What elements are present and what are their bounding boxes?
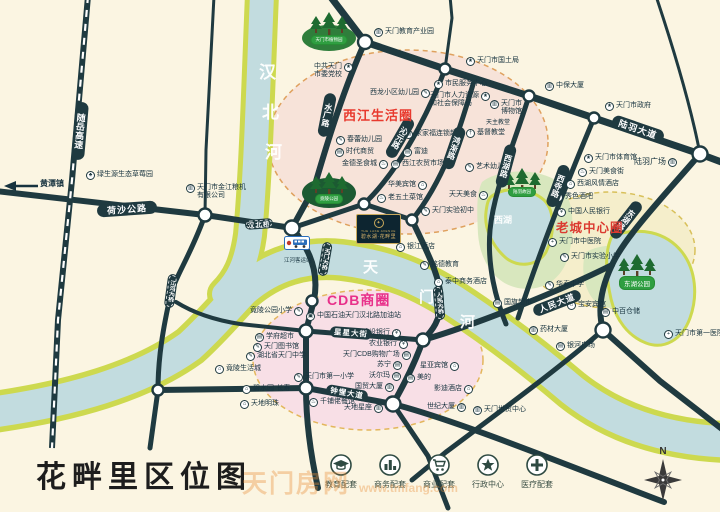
gov-poi-icon: ★ — [466, 57, 475, 66]
poi: ✎天门实验初中 — [421, 207, 474, 216]
poi: ♣绿生源生态草莓园 — [86, 171, 153, 180]
poi-label: 世纪大厦 — [427, 403, 455, 411]
poi: ▤银河广场 — [556, 342, 595, 351]
river-name-char: 西湖 — [494, 213, 512, 226]
edu-poi-icon: ✎ — [545, 281, 554, 290]
poi-label: 竟陵公园小学 — [250, 307, 292, 315]
poi-label: 天门美食街 — [589, 168, 624, 176]
poi: ★天门市政府 — [605, 102, 651, 111]
edu-poi-icon: ✎ — [420, 261, 429, 270]
poi: ♨老五土菜馆 — [377, 194, 423, 203]
legend-label: 行政中心 — [472, 479, 504, 490]
poi: 影迪酒店⌂ — [434, 385, 473, 394]
poi-label: 金德圣食城 — [342, 160, 377, 168]
poi: 竟陵公园小学✎ — [250, 307, 303, 316]
poi-label: 基督教堂 — [477, 129, 505, 137]
poi: +天门市中医院 — [548, 238, 601, 247]
gov-poi-icon: ★ — [584, 154, 593, 163]
poi-label: 中共天门市委党校 — [314, 63, 342, 79]
zone-label: 西江生活圈 — [343, 105, 413, 124]
poi: ★市民服务中心 — [434, 80, 487, 89]
biz-poi-icon: ▥ — [385, 383, 394, 392]
poi-label: 中百仓储 — [612, 308, 640, 316]
poi-label: 西江农贸市场 — [402, 160, 444, 168]
road-label: 荷沙公路 — [97, 200, 158, 217]
shop-poi-icon: ▤ — [255, 333, 264, 342]
poi: ⌂西湖风情酒店 — [566, 180, 619, 189]
edu-poi-icon: ✎ — [421, 207, 430, 216]
park-label: 东湖公园 — [619, 276, 655, 290]
road-label: 汉北桥 — [245, 218, 274, 230]
hotel-poi-icon: ⌂ — [450, 362, 459, 371]
hotel-poi-icon: ⌂ — [566, 180, 575, 189]
zone-label: 老城中心圈 — [556, 217, 624, 236]
watermark-en: www.tmfang.com — [359, 481, 458, 495]
edu-poi-icon: ✎ — [465, 163, 474, 172]
poi: ▥天门市博物馆 — [490, 100, 522, 116]
poi: 天主教堂 — [486, 119, 510, 127]
edu-poi-icon: ✎ — [253, 343, 262, 352]
shop-poi-icon: ▤ — [402, 351, 411, 360]
watermark: 天门房网 www.tmfang.com — [242, 464, 458, 500]
food-poi-icon: ♨ — [479, 191, 488, 200]
church-poi-icon: † — [466, 129, 475, 138]
park-label: 竟陵公园 — [315, 194, 343, 204]
poi-label: 中国人民银行 — [568, 208, 610, 216]
poi-label: 国旗超市 — [504, 299, 532, 307]
poi: ★天门市体育馆 — [584, 154, 637, 163]
poi: 天门市人力资源和社会保障局★ — [430, 92, 490, 108]
poi-label: 天主教堂 — [486, 119, 510, 127]
poi: ▣中国石油天门汉北路加油站 — [306, 312, 401, 321]
poi: 华美宾馆⌂ — [388, 181, 427, 190]
poi-label: 天天美食 — [449, 191, 477, 199]
poi: ▤富迪 — [403, 148, 428, 157]
road-label: 星星大街 — [330, 326, 373, 340]
poi-label: 绿生源生态草莓园 — [97, 171, 153, 179]
poi: +天门市第一医院 — [664, 330, 720, 339]
poi: 星亚宾馆⌂ — [420, 362, 459, 371]
food-poi-icon: ♨ — [379, 160, 388, 169]
poi: ▥天门教育产业园 — [374, 28, 434, 37]
poi-label: 老五土菜馆 — [388, 194, 423, 202]
gov-poi-icon: ★ — [481, 92, 490, 101]
poi-label: 沃尔玛 — [369, 372, 390, 380]
poi: ✎湖北省天门中学 — [246, 352, 306, 361]
poi: 世纪大厦▥ — [427, 403, 466, 412]
poi: ▤学府超市 — [255, 333, 294, 342]
poi: 天天美食♨ — [449, 191, 488, 200]
poi-label: 天门市中医院 — [559, 238, 601, 246]
poi-label: 农业银行 — [369, 340, 397, 348]
poi-label: 天门教育产业园 — [385, 28, 434, 36]
poi: 金德圣食城♨ — [342, 160, 388, 169]
road-label: 人民大桥 — [433, 286, 446, 321]
poi: ▤国旗超市 — [493, 299, 532, 308]
biz-poi-icon: ▥ — [374, 404, 383, 413]
poi-label: 学府超市 — [266, 333, 294, 341]
biz-poi-icon: ▥ — [473, 406, 482, 415]
poi-label: 市民服务中心 — [445, 80, 487, 88]
road-label: 江河大桥 — [164, 273, 179, 308]
biz-poi-icon: ▥ — [668, 158, 677, 167]
gas-poi-icon: ▣ — [306, 312, 315, 321]
river-name-char: 河 — [460, 311, 475, 332]
poi: ✎天门市实验小学 — [560, 253, 620, 262]
poi-label: 天门市体育馆 — [595, 154, 637, 162]
poi-label: 天门市实验小学 — [571, 253, 620, 261]
poi-label: 影迪酒店 — [434, 385, 462, 393]
poi-label: 竟陵生活城 — [226, 365, 261, 373]
poi-label: 西湖风情酒店 — [577, 180, 619, 188]
poi: ▤中百仓储 — [601, 308, 640, 317]
road-label: 陆羽大道 — [610, 114, 665, 144]
shop-poi-icon: ▤ — [601, 308, 610, 317]
poi-label: 春蕾幼儿园 — [347, 136, 382, 144]
poi-label: 湖北省天门中学 — [257, 352, 306, 360]
page-title: 花畔里区位图 — [36, 452, 252, 496]
poi: ▥中保大厦 — [545, 82, 584, 91]
road-label: 水厂路 — [317, 92, 337, 137]
med-poi-icon: + — [664, 330, 673, 339]
poi: ♨天门美食街 — [578, 168, 624, 177]
shop-poi-icon: ▤ — [392, 372, 401, 381]
shop-poi-icon: ▤ — [391, 160, 400, 169]
poi: ▤西江农贸市场 — [391, 160, 444, 169]
shop-poi-icon: ▤ — [393, 361, 402, 370]
biz-poi-icon: ▥ — [529, 326, 538, 335]
poi-label: 天门市国土局 — [477, 57, 519, 65]
poi: ✎天门市第一小学 — [294, 373, 354, 382]
compass: N — [634, 446, 692, 508]
road-label: 天门大桥 — [317, 241, 333, 276]
compass-n-label: N — [634, 446, 692, 457]
poi-label: 星亚宾馆 — [420, 362, 448, 370]
shop-poi-icon: ▤ — [406, 374, 415, 383]
gov-poi-icon: ★ — [605, 102, 614, 111]
government-icon — [477, 454, 499, 476]
poi-label: 天地明珠 — [251, 400, 279, 408]
park-label: 陆羽故园 — [508, 187, 536, 197]
poi: ⌂泰中商务酒店 — [434, 278, 487, 287]
bank-poi-icon: ¥ — [557, 208, 566, 217]
poi: ✎春蕾幼儿园 — [336, 136, 382, 145]
poi: ▥天门市金江粮机有限公司 — [186, 184, 246, 200]
poi-label: 美的 — [417, 374, 431, 382]
edu-poi-icon: ✎ — [294, 373, 303, 382]
poi: 西龙小区幼儿园✎ — [370, 89, 430, 98]
poi-label: 银河广场 — [567, 342, 595, 350]
legend-label: 医疗配套 — [521, 479, 553, 490]
zone-label: CDB商圈 — [327, 290, 390, 310]
bank-poi-icon: ¥ — [399, 340, 408, 349]
poi: 天门CDB购物广场▤ — [343, 351, 411, 360]
poi: ▤时代商贸 — [335, 148, 374, 157]
poi: ¥中国人民银行 — [557, 208, 610, 217]
poi-label: 富迪 — [414, 148, 428, 156]
biz-poi-icon: ▥ — [374, 28, 383, 37]
shop-poi-icon: ▤ — [403, 148, 412, 157]
home-poi-icon: ⌂ — [240, 400, 249, 409]
watermark-cn: 天门房网 — [242, 470, 350, 498]
poi-label: 天门市第一小学 — [305, 373, 354, 381]
poi: ♨千铺佬餐馆 — [309, 398, 355, 407]
gov-poi-icon: ★ — [344, 63, 353, 72]
poi: 陆羽广场▥ — [634, 158, 677, 167]
poi: ✎天门图书馆 — [253, 343, 299, 352]
poi-label: 天门图书馆 — [264, 343, 299, 351]
gov-poi-icon: ★ — [434, 80, 443, 89]
hotel-poi-icon: ⌂ — [396, 243, 405, 252]
poi: ★天门市国土局 — [466, 57, 519, 66]
poi: ▥药材大厦 — [529, 326, 568, 335]
poi-label: 天门市政府 — [616, 102, 651, 110]
poi: 苏宁▤ — [377, 361, 402, 370]
poi-label: 西龙小区幼儿园 — [370, 89, 419, 97]
poi-label: 碧水园·长寿 — [253, 385, 290, 393]
poi: 沃尔玛▤ — [369, 372, 401, 381]
poi-label: 天门世贸中心 — [484, 406, 526, 414]
river-name-char: 门 — [419, 286, 434, 307]
poi: 中共天门市委党校★ — [314, 63, 353, 79]
food-poi-icon: ♨ — [309, 398, 318, 407]
river-name-char: 天 — [363, 256, 378, 277]
poi-label: 天门实验初中 — [432, 207, 474, 215]
poi-label: 时代商贸 — [346, 148, 374, 156]
poi-label: 天门市博物馆 — [501, 100, 522, 116]
poi-label: 秀色酒吧 — [565, 193, 593, 201]
farm-poi-icon: ♣ — [86, 171, 95, 180]
river-name-char: 汉 — [259, 58, 276, 83]
river-name-char: 河 — [265, 138, 282, 163]
home-poi-icon: ⌂ — [215, 365, 224, 374]
edu-poi-icon: ✎ — [294, 307, 303, 316]
biz-poi-icon: ▥ — [186, 184, 195, 193]
compass-rose-icon — [641, 457, 685, 503]
poi: 农业银行¥ — [369, 340, 408, 349]
river-name-char: 北 — [262, 98, 279, 123]
poi-label: 天门市金江粮机有限公司 — [197, 184, 246, 200]
shop-poi-icon: ▤ — [335, 148, 344, 157]
poi: ✎铭德教育 — [420, 261, 459, 270]
edu-poi-icon: ✎ — [421, 89, 430, 98]
poi: ▤美的 — [406, 374, 431, 383]
road-label: 随岳高速 — [71, 102, 89, 161]
biz-poi-icon: ▥ — [457, 403, 466, 412]
poi-label: 中国石油天门汉北路加油站 — [317, 312, 401, 320]
home-poi-icon: ⌂ — [242, 385, 251, 394]
edu-poi-icon: ✎ — [246, 352, 255, 361]
med-poi-icon: + — [548, 238, 557, 247]
shop-poi-icon: ▤ — [493, 299, 502, 308]
edu-poi-icon: ✎ — [560, 253, 569, 262]
shop-poi-icon: ▤ — [556, 342, 565, 351]
bank-poi-icon: ¥ — [392, 329, 401, 338]
park-label: 天门市植物园 — [311, 35, 348, 45]
food-poi-icon: ♨ — [578, 168, 587, 177]
poi-label: 药材大厦 — [540, 326, 568, 334]
poi-label: 泰中商务酒店 — [445, 278, 487, 286]
edu-poi-icon: ✎ — [336, 136, 345, 145]
hotel-poi-icon: ⌂ — [464, 385, 473, 394]
legend-item-government: 行政中心 — [470, 454, 506, 490]
poi: ▥天门世贸中心 — [473, 406, 526, 415]
poi-label: 陆羽广场 — [634, 158, 666, 166]
poi-label: 天门市第一医院 — [675, 330, 720, 338]
poi-label: 华美宾馆 — [388, 181, 416, 189]
medical-icon — [526, 454, 548, 476]
poi: ⌂天地明珠 — [240, 400, 279, 409]
poi-label: 天门CDB购物广场 — [343, 351, 400, 359]
poi-label: 天门市人力资源和社会保障局 — [430, 92, 479, 108]
map-labels-layer: ♣绿生源生态草莓园▥天门市金江粮机有限公司▥天门教育产业园中共天门市委党校★★天… — [0, 0, 720, 512]
biz-poi-icon: ▥ — [490, 100, 499, 109]
poi: ⌂银江酒店 — [396, 243, 435, 252]
location-map-page: 江河客运站 ✦ THE LAKE AVENUE 碧水湖·花畔里 黄潭镇 ♣绿生源… — [0, 0, 720, 512]
poi-label: 银江酒店 — [407, 243, 435, 251]
poi: ✎华泰中学 — [545, 281, 584, 290]
poi: ⌂碧水园·长寿 — [242, 385, 290, 394]
poi-label: 华泰中学 — [556, 281, 584, 289]
poi-label: 铭德教育 — [431, 261, 459, 269]
legend-item-medical: 医疗配套 — [519, 454, 555, 490]
poi: ⌂竟陵生活城 — [215, 365, 261, 374]
poi-label: 中保大厦 — [556, 82, 584, 90]
hotel-poi-icon: ⌂ — [418, 181, 427, 190]
poi: †基督教堂 — [466, 129, 505, 138]
poi-label: 苏宁 — [377, 361, 391, 369]
biz-poi-icon: ▥ — [545, 82, 554, 91]
food-poi-icon: ♨ — [377, 194, 386, 203]
